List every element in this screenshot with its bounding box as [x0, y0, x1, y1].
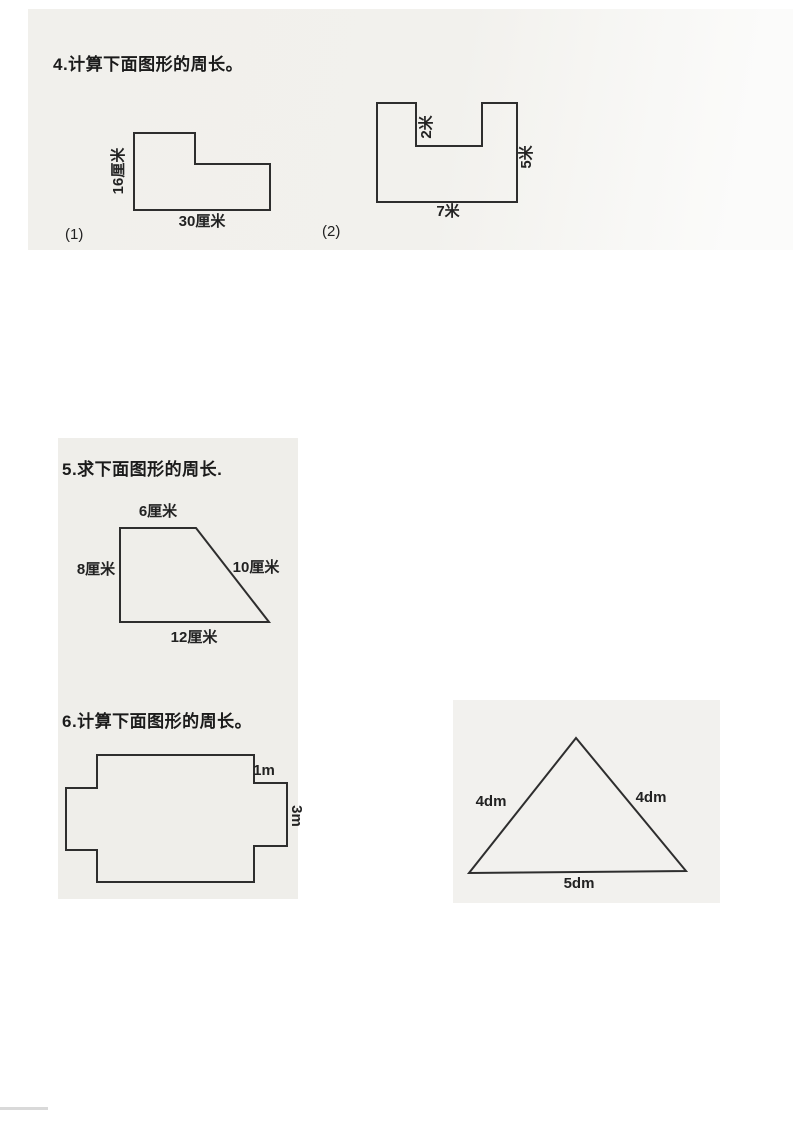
worksheet-page: { "problem4": { "title": "4.计算下面图形的周长。",… [0, 0, 793, 1122]
figure2-notch-dimension: 2米 [419, 109, 435, 145]
problem6-title: 6.计算下面图形的周长。 [62, 707, 252, 732]
l-shape-figure [124, 123, 280, 220]
triangle-left-dimension: 4dm [469, 794, 513, 810]
cross-top-right-dimension: 1m [248, 763, 280, 779]
figure2-right-dimension: 5米 [519, 139, 535, 175]
problem5-title: 5.求下面图形的周长. [62, 455, 222, 480]
triangle-bottom-dimension: 5dm [557, 876, 601, 892]
trapezoid-bottom-dimension: 12厘米 [154, 630, 234, 646]
figure2-bottom-dimension: 7米 [418, 204, 478, 220]
trapezoid-top-dimension: 6厘米 [123, 504, 193, 520]
u-shape-outline [377, 103, 517, 202]
figure1-left-dimension: 16厘米 [111, 140, 127, 202]
triangle-right-dimension: 4dm [629, 790, 673, 806]
scan-artifact-line [0, 1107, 48, 1110]
figure1-bottom-dimension: 30厘米 [167, 214, 237, 230]
problem4-title: 4.计算下面图形的周长。 [53, 50, 243, 75]
figure1-index: (1) [65, 226, 83, 243]
cross-right-dimension: 3m [288, 800, 304, 832]
u-shape-figure [367, 93, 527, 213]
figure2-index: (2) [322, 223, 340, 240]
l-shape-outline [134, 133, 270, 210]
trapezoid-left-dimension: 8厘米 [61, 562, 131, 578]
trapezoid-right-dimension: 10厘米 [216, 560, 296, 576]
